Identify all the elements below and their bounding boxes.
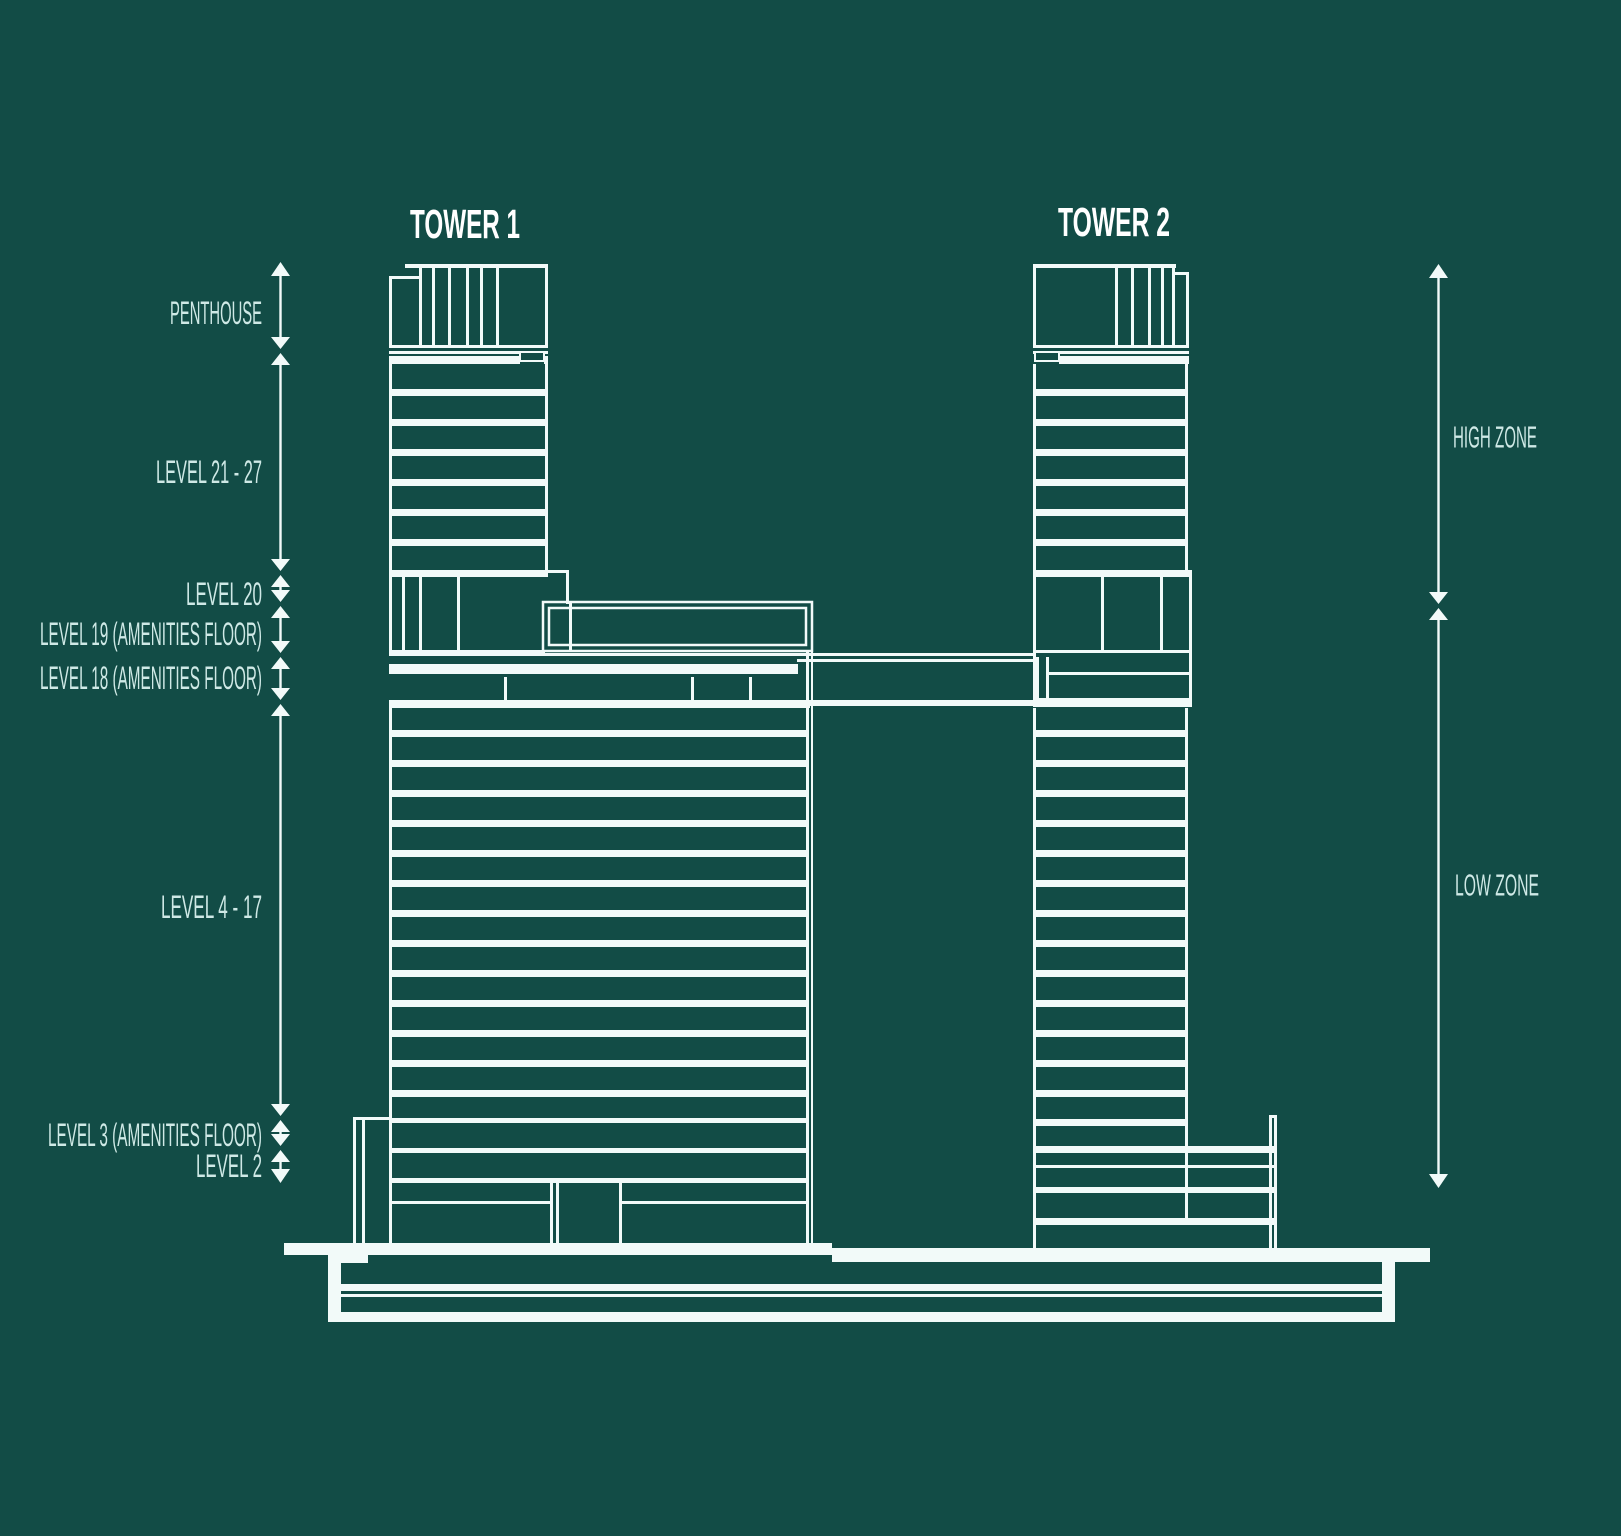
level-label-2: LEVEL 2 bbox=[196, 1148, 262, 1184]
level-label-penthouse: PENTHOUSE bbox=[170, 295, 262, 331]
zone-label-low: LOW ZONE bbox=[1455, 868, 1539, 903]
zone-label-high: HIGH ZONE bbox=[1453, 420, 1537, 455]
tower2-title: TOWER 2 bbox=[1058, 199, 1170, 245]
building-section-diagram: TOWER 1 TOWER 2 PENTHOUSE LEVEL 21 - 27 … bbox=[0, 0, 1621, 1536]
level-label-21-27: LEVEL 21 - 27 bbox=[156, 454, 262, 490]
diagram-canvas: TOWER 1 TOWER 2 PENTHOUSE LEVEL 21 - 27 … bbox=[0, 0, 1621, 1536]
tower2-roof-vent bbox=[1035, 352, 1059, 361]
tower1-roof-vent bbox=[520, 352, 544, 361]
sky-bridge bbox=[810, 700, 1033, 706]
tower1-title: TOWER 1 bbox=[410, 201, 520, 247]
level-label-18: LEVEL 18 (AMENITIES FLOOR) bbox=[40, 660, 262, 696]
level-label-19: LEVEL 19 (AMENITIES FLOOR) bbox=[40, 616, 262, 652]
level-label-4-17: LEVEL 4 - 17 bbox=[161, 889, 262, 925]
level-label-20: LEVEL 20 bbox=[186, 576, 262, 612]
background bbox=[0, 0, 1621, 1536]
